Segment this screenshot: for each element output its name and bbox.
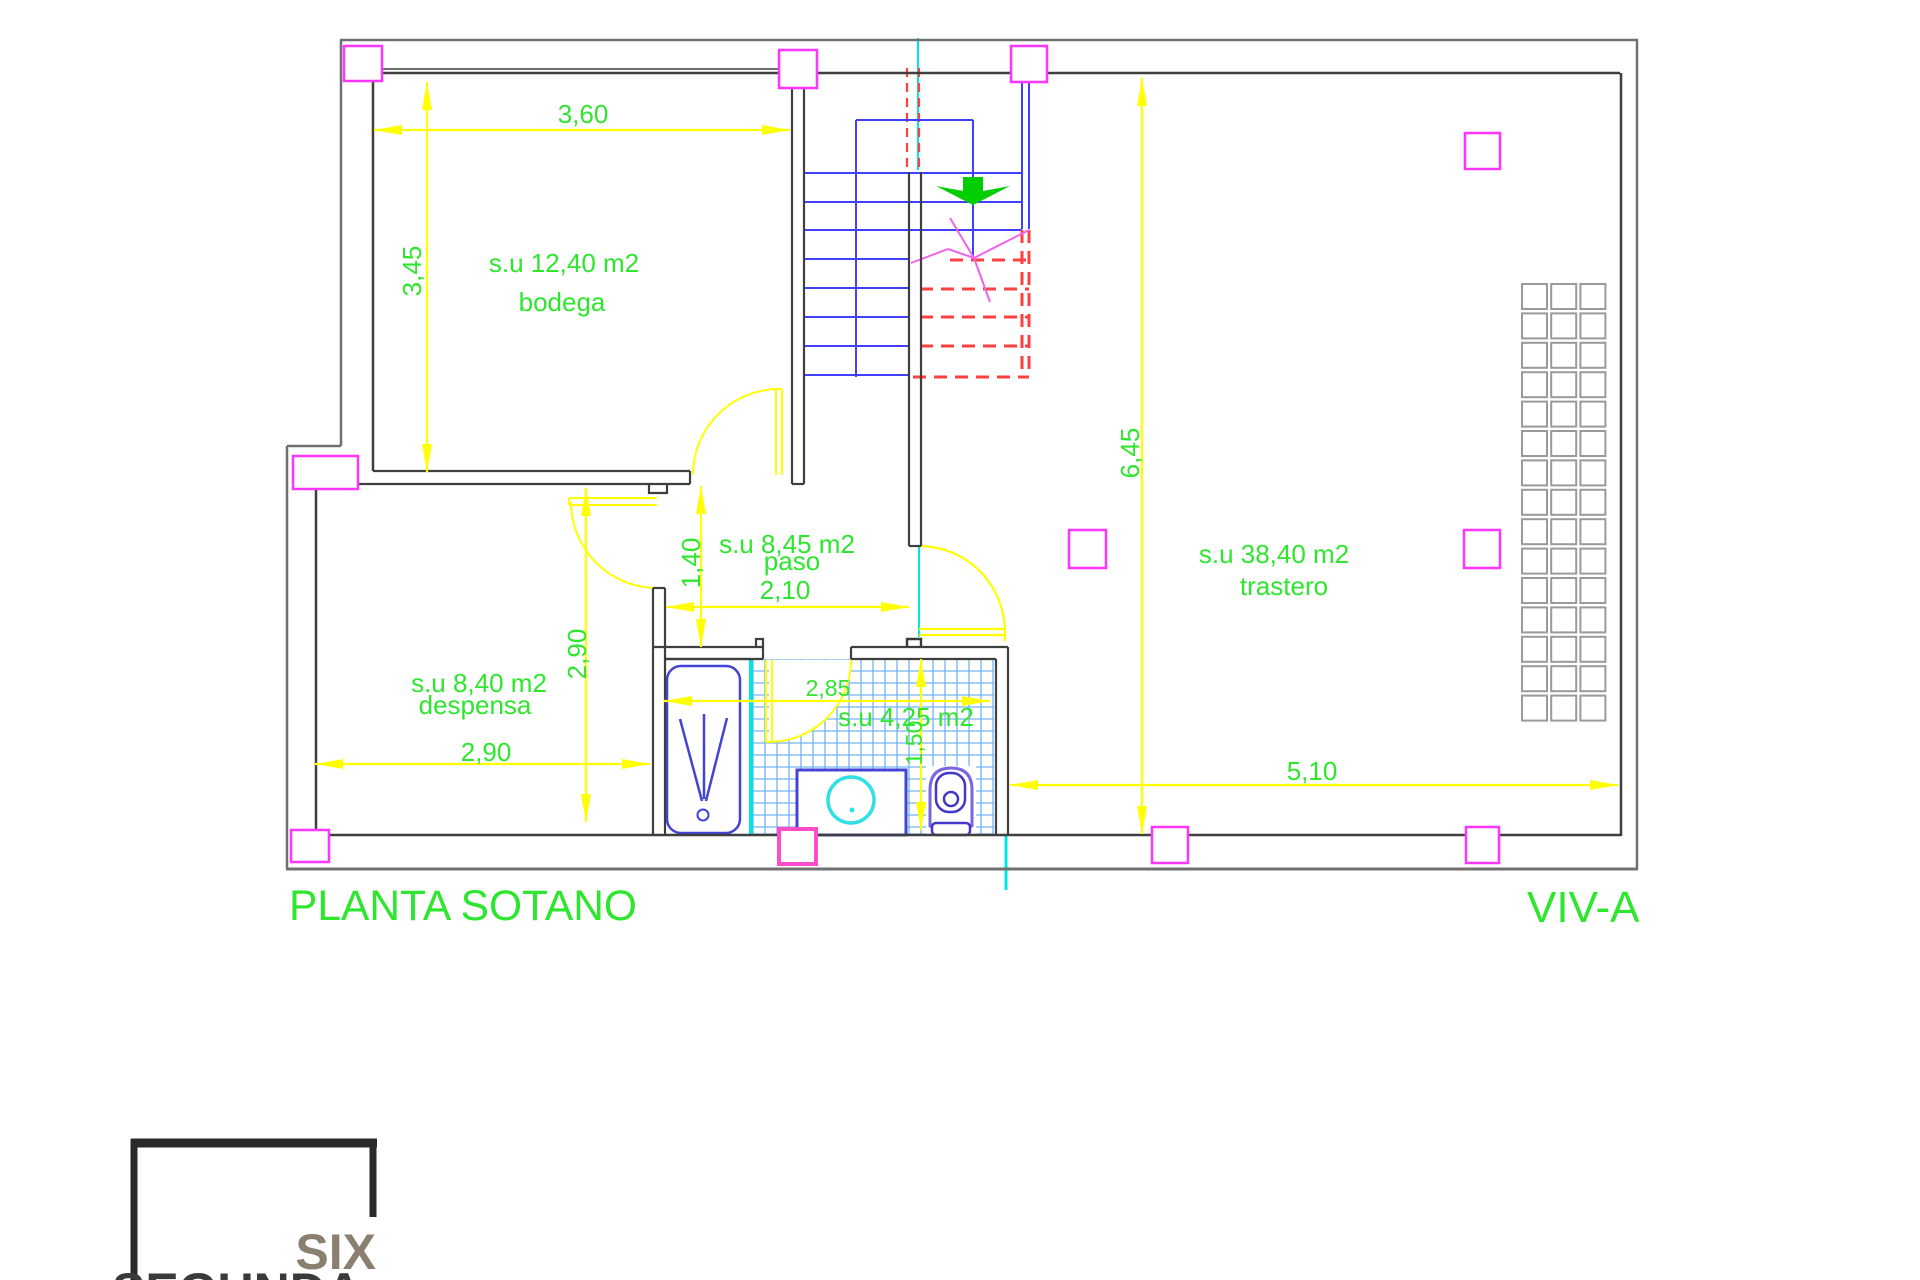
svg-text:paso: paso — [764, 546, 820, 576]
svg-text:despensa: despensa — [419, 690, 532, 720]
svg-text:trastero: trastero — [1240, 571, 1328, 601]
svg-text:VIV-A: VIV-A — [1527, 883, 1640, 932]
svg-text:5,10: 5,10 — [1287, 756, 1338, 786]
svg-text:6,45: 6,45 — [1115, 428, 1145, 479]
svg-text:s.u 12,40 m2: s.u 12,40 m2 — [489, 248, 639, 278]
svg-text:PLANTA SOTANO: PLANTA SOTANO — [289, 883, 637, 930]
svg-text:s.u 38,40 m2: s.u 38,40 m2 — [1199, 539, 1349, 569]
svg-text:3,45: 3,45 — [397, 246, 427, 297]
svg-text:1,50: 1,50 — [901, 721, 927, 766]
svg-text:2,10: 2,10 — [760, 575, 811, 605]
svg-text:2,90: 2,90 — [461, 737, 512, 767]
svg-text:2,85: 2,85 — [806, 675, 851, 701]
svg-text:1,40: 1,40 — [676, 538, 706, 589]
svg-text:2,90: 2,90 — [562, 629, 592, 680]
svg-text:SEGUNDA: SEGUNDA — [112, 1263, 362, 1280]
svg-text:3,60: 3,60 — [558, 99, 609, 129]
svg-text:bodega: bodega — [519, 287, 606, 317]
